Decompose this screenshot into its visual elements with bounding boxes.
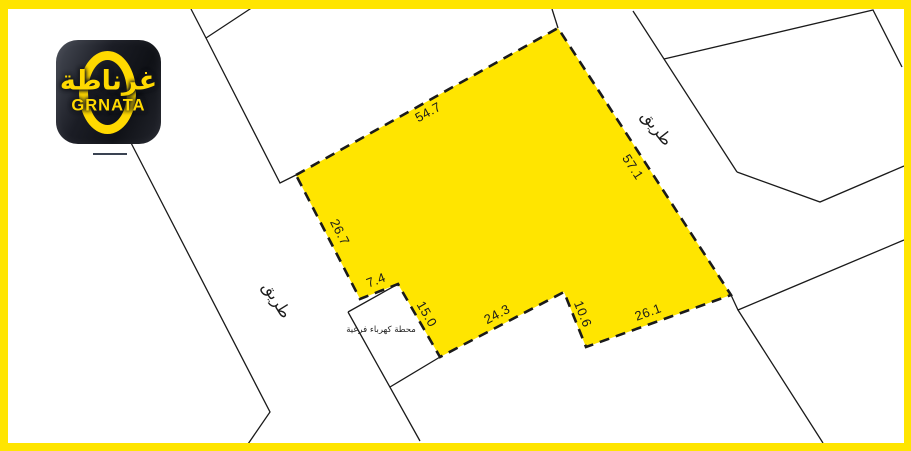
block-line-upper-right-bottom	[737, 166, 904, 202]
block-line-lower-right	[731, 240, 904, 443]
block-line-top-tick	[552, 9, 558, 28]
logo-arabic-name: غرناطة	[60, 68, 157, 95]
highlighted-plot-parcel	[296, 28, 731, 357]
block-line-upper-left	[191, 7, 296, 183]
frame-border-bottom	[0, 443, 911, 451]
road-line-right	[633, 11, 737, 172]
substation-label: محطة كهرباء فرعية	[346, 325, 416, 335]
frame-border-right	[904, 0, 911, 451]
frame-border-left	[0, 0, 8, 451]
plot-map-canvas: 54.7 57.1 26.7 7.4 15.0 24.3 10.6 26.1 ط…	[0, 0, 911, 451]
road-line-left	[129, 139, 270, 444]
block-line-upper-right-top	[664, 10, 902, 67]
frame-border-top	[0, 0, 911, 9]
logo-latin-name: GRNATA	[71, 97, 145, 116]
grnata-logo: غرناطة GRNATA	[56, 40, 161, 144]
